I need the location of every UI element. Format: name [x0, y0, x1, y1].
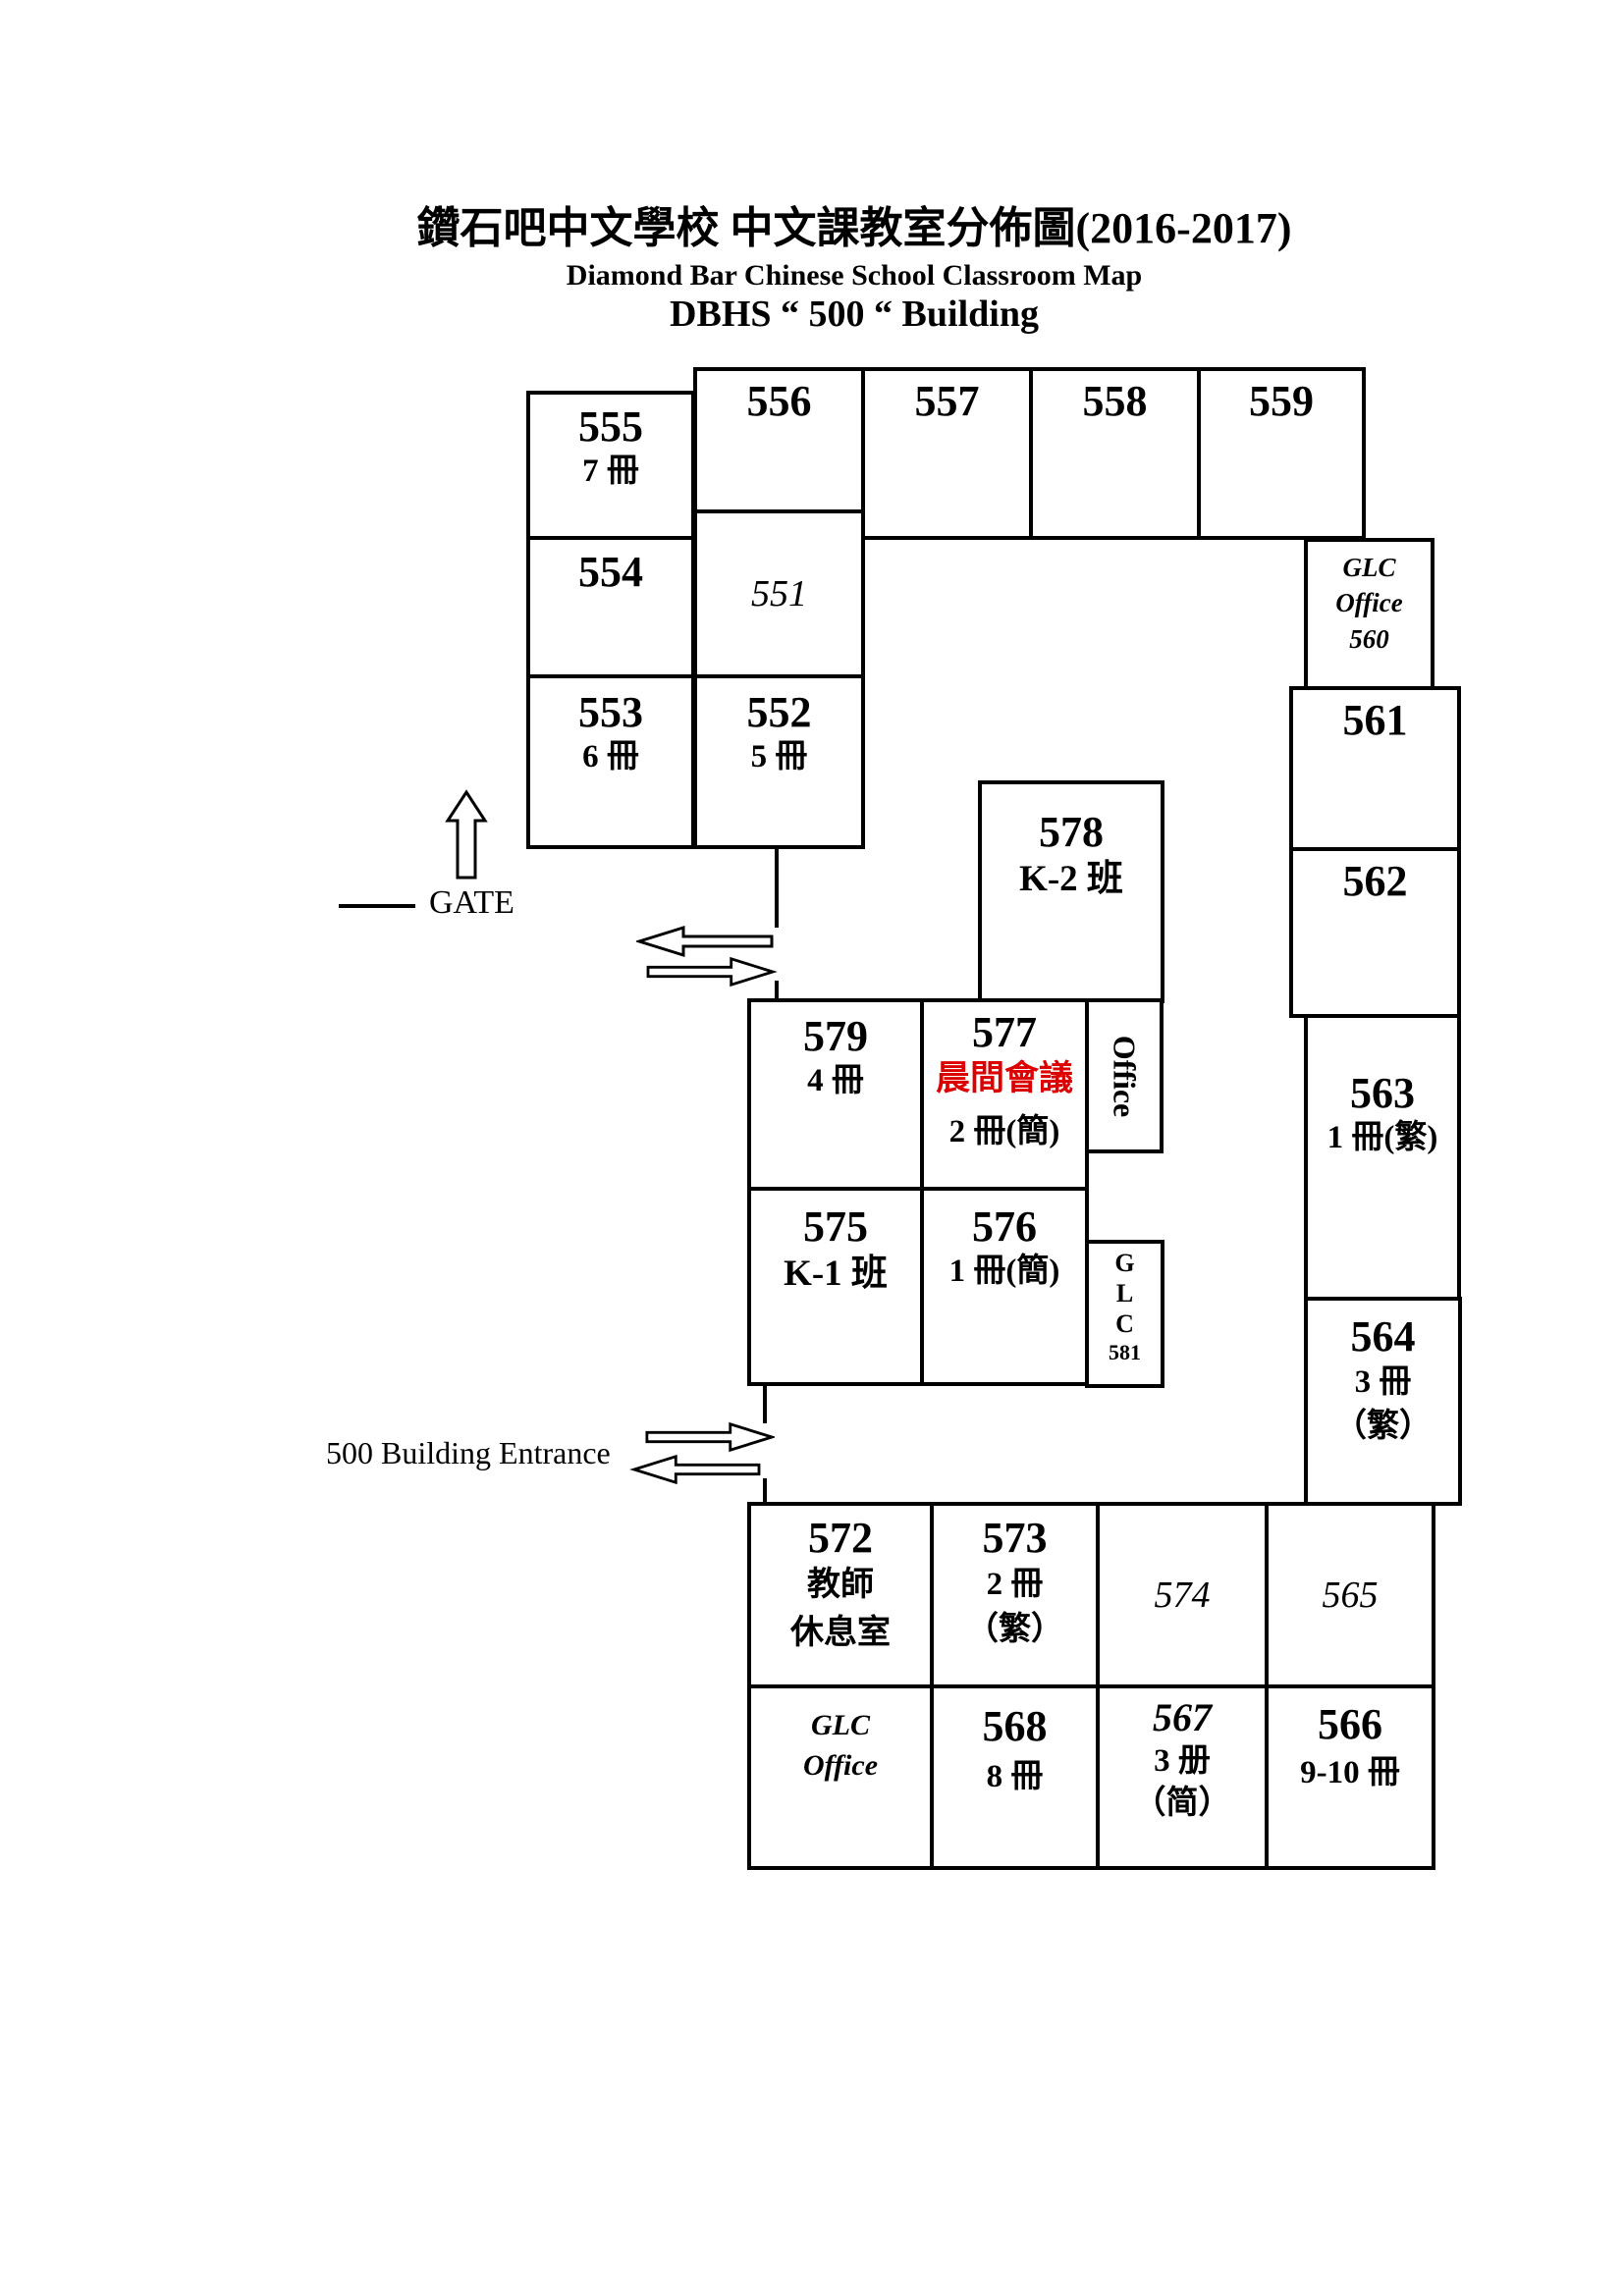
building-entrance-label: 500 Building Entrance [326, 1435, 611, 1471]
office-label: L [1089, 1278, 1161, 1308]
office-label: Office [751, 1746, 930, 1787]
room-551: 551 [693, 509, 865, 678]
room-number: 564 [1308, 1312, 1458, 1361]
room-class-label: （繁） [1308, 1405, 1458, 1449]
walkway-right-arrow-icon [643, 956, 779, 988]
wall-segment [763, 1382, 767, 1423]
office-label: GLC [1308, 550, 1431, 585]
room-566: 566 9-10 冊 [1265, 1684, 1435, 1870]
page-title: 鑽石吧中文學校 中文課教室分佈圖(2016-2017) [417, 192, 1292, 255]
room-number: 579 [751, 1012, 920, 1060]
room-572: 572 教師 休息室 [747, 1502, 934, 1688]
room-number: 551 [751, 573, 807, 615]
room-class-label: 2 冊(簡) [924, 1111, 1085, 1153]
room-number: 554 [530, 548, 691, 596]
room-class-label: 1 冊(簡) [924, 1251, 1085, 1293]
room-class-label: 8 冊 [934, 1756, 1096, 1798]
room-class-label: 3 冊 [1308, 1361, 1458, 1405]
room-class-label: 1 冊(繁) [1308, 1117, 1457, 1159]
room-number: 578 [982, 808, 1161, 856]
room-559: 559 [1197, 367, 1366, 540]
room-576: 576 1 冊(簡) [920, 1187, 1089, 1386]
room-number: 575 [751, 1202, 920, 1251]
office-vertical-text: Office [1089, 1002, 1160, 1149]
room-556: 556 [693, 367, 865, 513]
room-564: 564 3 冊 （繁） [1304, 1297, 1462, 1506]
room-number: 574 [1155, 1575, 1211, 1617]
room-number: 555 [530, 402, 691, 451]
room-number: 553 [530, 688, 691, 736]
room-568: 568 8 冊 [930, 1684, 1100, 1870]
room-560-glc-office: GLC Office 560 [1304, 538, 1435, 690]
room-number: 560 [1308, 621, 1431, 657]
room-glc-581: G L C 581 [1085, 1240, 1164, 1388]
room-573: 573 2 冊 （繁） [930, 1502, 1100, 1688]
room-class-label: 9-10 冊 [1269, 1752, 1432, 1794]
office-label: G [1089, 1248, 1161, 1278]
room-555: 555 7 冊 [526, 391, 695, 540]
room-number: 581 [1089, 1340, 1161, 1365]
room-552: 552 5 冊 [693, 674, 865, 849]
room-class-label: K-2 班 [982, 856, 1161, 903]
room-number: 562 [1293, 857, 1457, 905]
room-553: 553 6 冊 [526, 674, 695, 849]
classroom-map-page: 鑽石吧中文學校 中文課教室分佈圖(2016-2017) Diamond Bar … [0, 0, 1624, 2296]
room-number: 552 [697, 688, 861, 736]
room-class-label: 5 冊 [697, 736, 861, 778]
room-glc-office-bottom: GLC Office [747, 1684, 934, 1870]
room-number: 563 [1308, 1069, 1457, 1117]
room-578: 578 K-2 班 [978, 780, 1164, 1003]
room-number: 557 [865, 377, 1029, 425]
room-number: 576 [924, 1202, 1085, 1251]
gate-up-arrow-icon [444, 789, 489, 880]
page-subtitle-english: Diamond Bar Chinese School Classroom Map [567, 259, 1142, 293]
room-577: 577 晨間會議 2 冊(簡) [920, 998, 1089, 1191]
room-office: Office [1085, 998, 1164, 1153]
room-class-label: 7 冊 [530, 451, 691, 493]
page-subtitle-building: DBHS “ 500 “ Building [670, 293, 1039, 336]
room-562: 562 [1289, 847, 1461, 1018]
room-number: 558 [1033, 377, 1197, 425]
room-class-label: K-1 班 [751, 1251, 920, 1298]
room-number: 561 [1293, 696, 1457, 744]
office-label: C [1089, 1308, 1161, 1339]
morning-meeting-label: 晨間會議 [924, 1058, 1085, 1099]
room-label: 教師 [751, 1562, 930, 1609]
room-561: 561 [1289, 686, 1461, 851]
room-557: 557 [861, 367, 1033, 540]
room-number: 567 [1100, 1696, 1265, 1740]
room-number: 573 [934, 1514, 1096, 1562]
office-label: Office [1107, 1035, 1143, 1117]
room-574: 574 [1096, 1502, 1269, 1688]
room-class-label: 4 冊 [751, 1060, 920, 1102]
office-label: GLC [751, 1706, 930, 1746]
room-class-label: 2 冊 [934, 1562, 1096, 1607]
walkway-left-arrow-icon [636, 925, 774, 958]
room-label: 休息室 [751, 1610, 930, 1657]
room-number: 566 [1269, 1700, 1432, 1748]
gate-label: GATE [429, 884, 514, 922]
wall-segment [775, 845, 779, 928]
room-563: 563 1 冊(繁) [1304, 1014, 1461, 1301]
room-number: 556 [697, 377, 861, 425]
room-class-label: 3 册 [1100, 1740, 1265, 1784]
room-558: 558 [1029, 367, 1201, 540]
room-575: 575 K-1 班 [747, 1187, 924, 1386]
entrance-right-arrow-icon [645, 1418, 775, 1456]
room-class-label: （繁） [934, 1607, 1096, 1652]
office-label: Office [1308, 585, 1431, 620]
room-579: 579 4 冊 [747, 998, 924, 1191]
room-number: 572 [751, 1514, 930, 1562]
room-class-label: 6 冊 [530, 736, 691, 778]
entrance-left-arrow-icon [622, 1454, 771, 1485]
room-number: 559 [1201, 377, 1362, 425]
room-565: 565 [1265, 1502, 1435, 1688]
gate-marker-line [339, 904, 415, 908]
room-554: 554 [526, 536, 695, 678]
room-number: 565 [1323, 1575, 1379, 1617]
room-number: 568 [934, 1702, 1096, 1750]
room-567: 567 3 册 （简） [1096, 1684, 1269, 1870]
room-number: 577 [924, 1008, 1085, 1056]
room-class-label: （简） [1100, 1783, 1265, 1826]
